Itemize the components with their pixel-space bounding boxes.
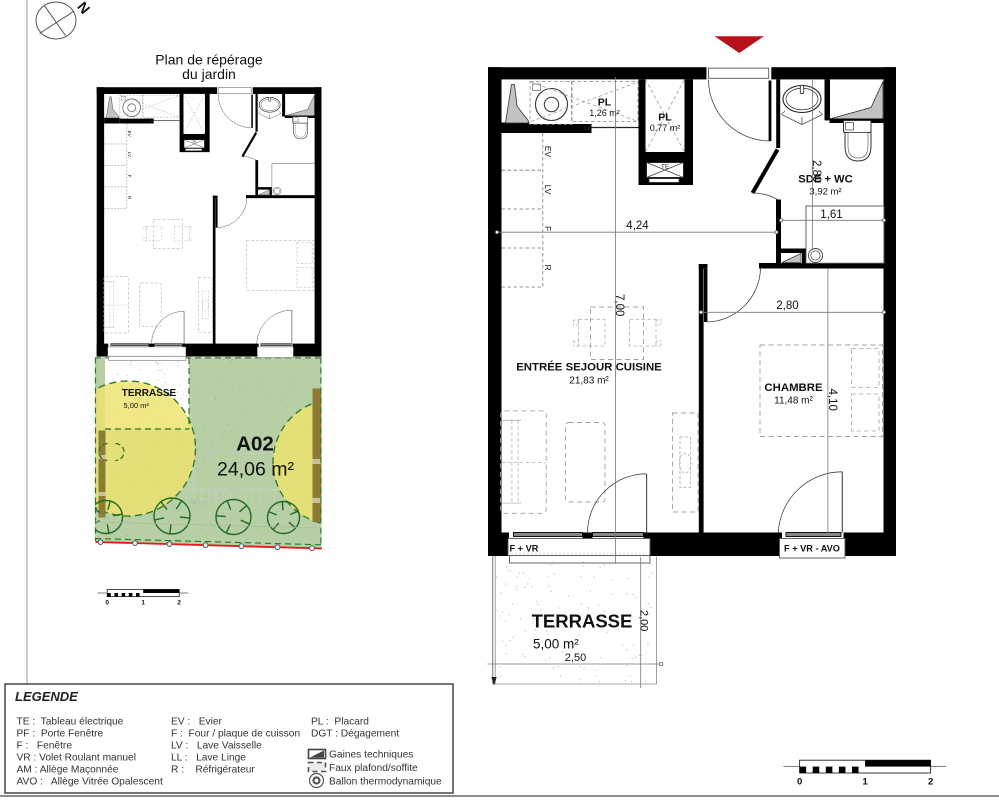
svg-text:0: 0 xyxy=(797,777,802,788)
svg-text:Faux plafond/soffite: Faux plafond/soffite xyxy=(329,763,418,774)
svg-text:2: 2 xyxy=(177,600,181,607)
svg-text:VR : Volet Roulant manuel: VR : Volet Roulant manuel xyxy=(17,753,137,764)
svg-text:LEGENDE: LEGENDE xyxy=(15,689,78,704)
svg-text:CHAMBRE: CHAMBRE xyxy=(764,382,823,394)
svg-text:TERRASSE: TERRASSE xyxy=(532,611,633,632)
svg-text:21,83 m²: 21,83 m² xyxy=(569,376,609,387)
svg-text:A02: A02 xyxy=(236,433,274,456)
svg-text:0,77 m²: 0,77 m² xyxy=(650,123,681,133)
svg-text:SDE + WC: SDE + WC xyxy=(798,174,852,186)
svg-text:2,80: 2,80 xyxy=(810,160,822,182)
svg-text:2,80: 2,80 xyxy=(776,300,798,312)
svg-text:F + VR - AVO: F + VR - AVO xyxy=(784,544,840,554)
svg-text:F: F xyxy=(543,226,553,231)
svg-text:TE: TE xyxy=(661,164,670,171)
svg-text:TE : Tableau électrique: TE : Tableau électrique xyxy=(17,717,124,728)
svg-text:Gaines techniques: Gaines techniques xyxy=(329,750,413,761)
svg-text:R: R xyxy=(543,265,553,271)
svg-text:N: N xyxy=(73,0,92,18)
svg-text:TERRASSE: TERRASSE xyxy=(122,388,177,399)
svg-text:LL: LL xyxy=(584,126,591,132)
svg-text:3,92 m²: 3,92 m² xyxy=(809,187,841,198)
svg-text:PL: PL xyxy=(598,97,612,109)
svg-text:TALUS: TALUS xyxy=(189,501,207,507)
svg-text:DGT : Dégagement: DGT : Dégagement xyxy=(311,729,399,740)
svg-text:11,48 m²: 11,48 m² xyxy=(774,396,813,407)
svg-text:2,00: 2,00 xyxy=(637,610,649,631)
svg-text:F : Four / plaque de cuisson: F : Four / plaque de cuisson xyxy=(171,729,300,740)
svg-text:2,50: 2,50 xyxy=(565,652,586,664)
svg-text:F + VR: F + VR xyxy=(510,544,539,554)
svg-text:PL : Placard: PL : Placard xyxy=(311,717,369,728)
svg-text:Ballon thermodynamique: Ballon thermodynamique xyxy=(329,777,442,788)
svg-text:ENTRÉE SEJOUR CUISINE: ENTRÉE SEJOUR CUISINE xyxy=(516,361,662,374)
svg-text:5,00 m²: 5,00 m² xyxy=(124,401,150,410)
svg-text:AM : Allège Maçonnée: AM : Allège Maçonnée xyxy=(17,765,119,776)
svg-text:PL: PL xyxy=(658,112,672,124)
svg-text:4,24: 4,24 xyxy=(626,220,649,232)
svg-text:1: 1 xyxy=(141,600,145,607)
svg-text:24,06 m²: 24,06 m² xyxy=(217,459,294,481)
svg-text:LL : Lave Linge: LL : Lave Linge xyxy=(171,753,246,764)
svg-text:LV: LV xyxy=(543,185,553,195)
svg-text:5,00 m²: 5,00 m² xyxy=(533,637,579,652)
svg-text:EV : Evier: EV : Evier xyxy=(171,717,223,728)
svg-text:du jardin: du jardin xyxy=(182,66,236,82)
svg-text:LV : Lave Vaisselle: LV : Lave Vaisselle xyxy=(171,741,262,752)
svg-text:1: 1 xyxy=(862,777,868,788)
svg-text:EV: EV xyxy=(543,146,553,158)
svg-text:1,61: 1,61 xyxy=(820,209,842,221)
svg-text:0: 0 xyxy=(105,600,109,607)
svg-text:AVO : Allège Vitrée Opalesce: AVO : Allège Vitrée Opalescent xyxy=(17,777,163,788)
svg-text:F : Fenêtre: F : Fenêtre xyxy=(17,741,73,752)
svg-text:PF : Porte Fenêtre: PF : Porte Fenêtre xyxy=(17,729,104,740)
svg-text:7,00: 7,00 xyxy=(613,294,625,316)
svg-text:4,10: 4,10 xyxy=(826,389,838,411)
svg-text:R : Réfrigérateur: R : Réfrigérateur xyxy=(171,765,255,776)
svg-text:2: 2 xyxy=(928,777,933,788)
